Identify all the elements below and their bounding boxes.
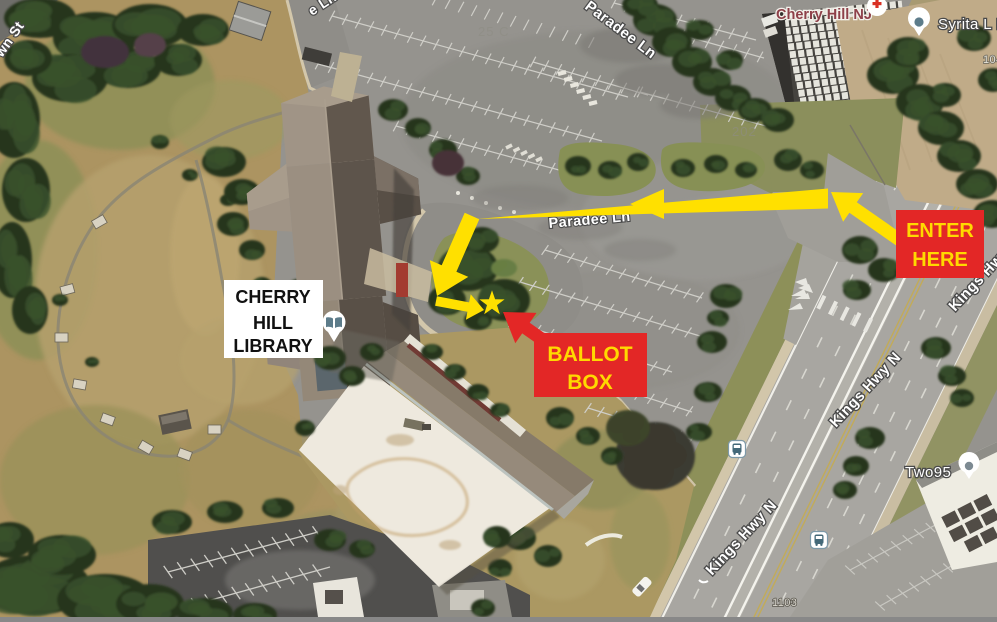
svg-text:BOX: BOX xyxy=(567,371,613,394)
svg-text:104: 104 xyxy=(983,54,997,66)
svg-text:Syrita L H: Syrita L H xyxy=(938,16,997,33)
svg-text:HILL: HILL xyxy=(253,313,293,333)
svg-text:HERE: HERE xyxy=(912,249,968,271)
svg-text:ENTER: ENTER xyxy=(906,220,974,242)
svg-text:BALLOT: BALLOT xyxy=(547,343,632,366)
svg-text:CHERRY: CHERRY xyxy=(235,287,310,307)
svg-text:Cherry Hill NJ: Cherry Hill NJ xyxy=(776,7,872,23)
svg-text:LIBRARY: LIBRARY xyxy=(233,336,312,356)
svg-text:202: 202 xyxy=(732,124,757,139)
svg-text:1103: 1103 xyxy=(772,597,797,609)
svg-text:25 C: 25 C xyxy=(478,24,509,39)
svg-text:Two95: Two95 xyxy=(905,464,951,481)
